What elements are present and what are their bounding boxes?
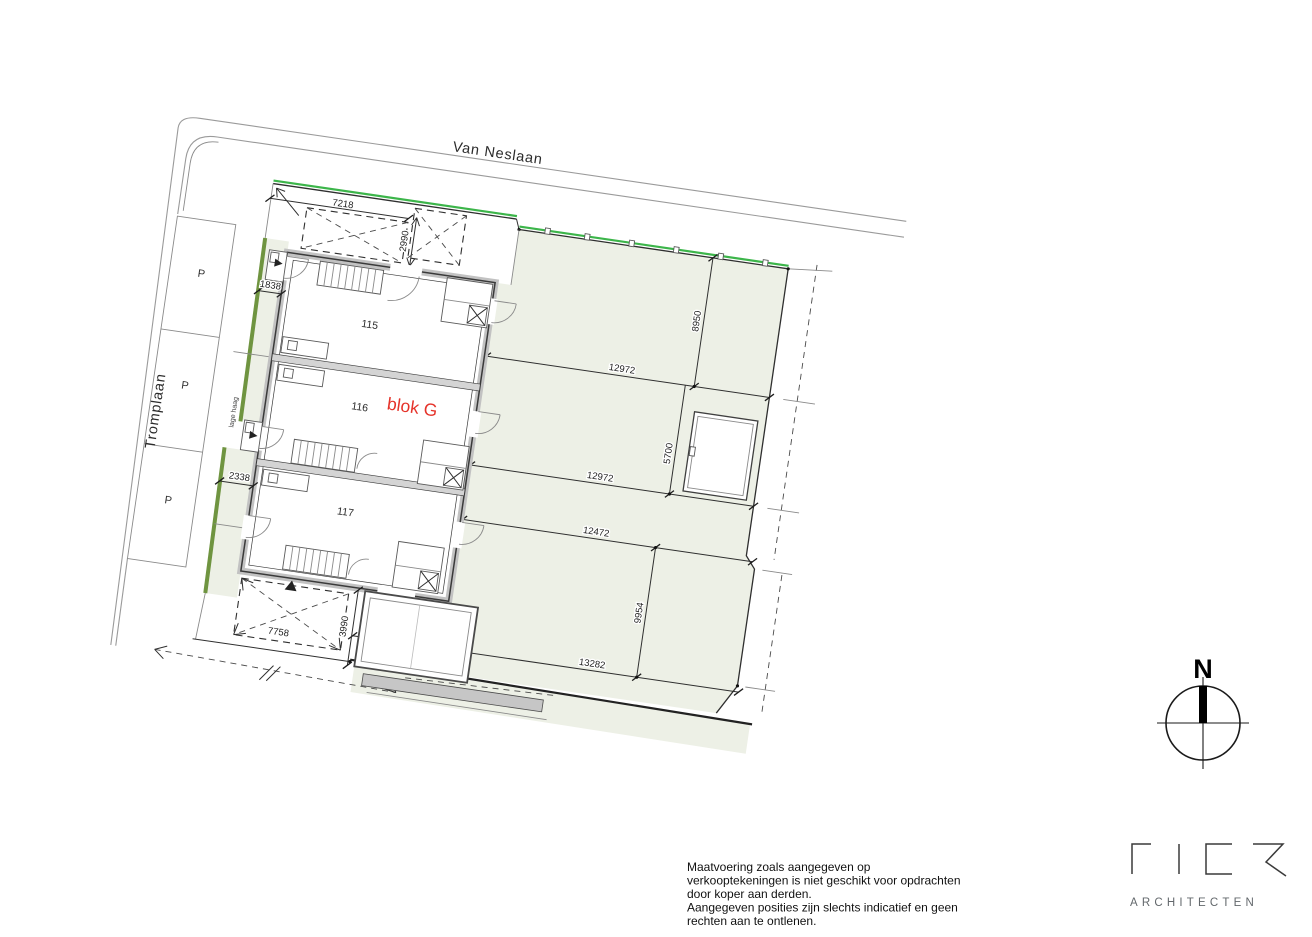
unit-label-116: 116 [351, 400, 369, 414]
rear-extension [354, 591, 478, 683]
logo-letter-f [1132, 844, 1151, 874]
boundary-tick [783, 399, 815, 404]
plan-rotated-group: P P P [101, 100, 909, 766]
boundary-tick [762, 570, 792, 574]
parking-bay-divider [161, 329, 219, 338]
disclaimer-text: Maatvoering zoals aangegeven op verkoopt… [687, 860, 961, 928]
dim-rear-extension-depth: 3990 [337, 615, 351, 638]
unit-label-115: 115 [361, 318, 379, 332]
north-needle-icon [1199, 686, 1207, 723]
boundary-west-top [265, 184, 273, 238]
garden-shed [683, 412, 758, 500]
dim-top-parking-width: 7218 [332, 197, 355, 211]
bathroom-pod-117 [392, 541, 444, 593]
disclaimer-line: Aangegeven posities zijn slechts indicat… [687, 901, 958, 915]
fier-architecten-logo: ARCHITECTEN [1130, 844, 1286, 909]
dim-south-parking-width: 7758 [267, 626, 290, 640]
meter-closet [245, 422, 254, 433]
parking-bay-label: P [180, 379, 189, 392]
boundary-tick [767, 508, 799, 513]
north-compass: N [1157, 654, 1249, 769]
boundary-west-bottom [196, 593, 206, 640]
logo-letter-r [1253, 844, 1286, 876]
boundary-north-a [273, 184, 516, 220]
disclaimer-line: rechten aan te ontlenen. [687, 914, 816, 928]
boundary-jog [515, 219, 520, 229]
street-label-tromplaan: Tromplaan [143, 372, 170, 449]
unit-label-117: 117 [336, 505, 354, 519]
fier-logo-glyphs [1132, 844, 1286, 876]
logo-subtitle: ARCHITECTEN [1130, 897, 1258, 909]
bathroom-pod-115 [441, 278, 493, 328]
fence-green-north-a [274, 181, 517, 217]
boundary-south-west [193, 639, 350, 662]
logo-letter-e [1206, 844, 1232, 874]
disclaimer-line: verkooptekeningen is niet geschikt voor … [687, 874, 961, 888]
parking-bay-label: P [197, 268, 206, 281]
parking-zone-cross-2 [408, 208, 467, 265]
site-plan-drawing: P P P [0, 0, 1312, 937]
hedge-label: lage haag [228, 397, 239, 429]
street-label-van-neslaan: Van Neslaan [452, 139, 544, 168]
bathroom-pod-116 [417, 440, 469, 490]
shed-door-mark [689, 447, 695, 457]
boundary-tick [788, 265, 832, 275]
compass-north-label: N [1193, 654, 1213, 684]
disclaimer-line: Maatvoering zoals aangegeven op [687, 860, 871, 874]
site-plan-page: P P P [0, 0, 1312, 937]
parking-bay-label: P [164, 494, 173, 507]
boundary-tick [745, 687, 775, 691]
disclaimer-line: door koper aan derden. [687, 887, 812, 901]
